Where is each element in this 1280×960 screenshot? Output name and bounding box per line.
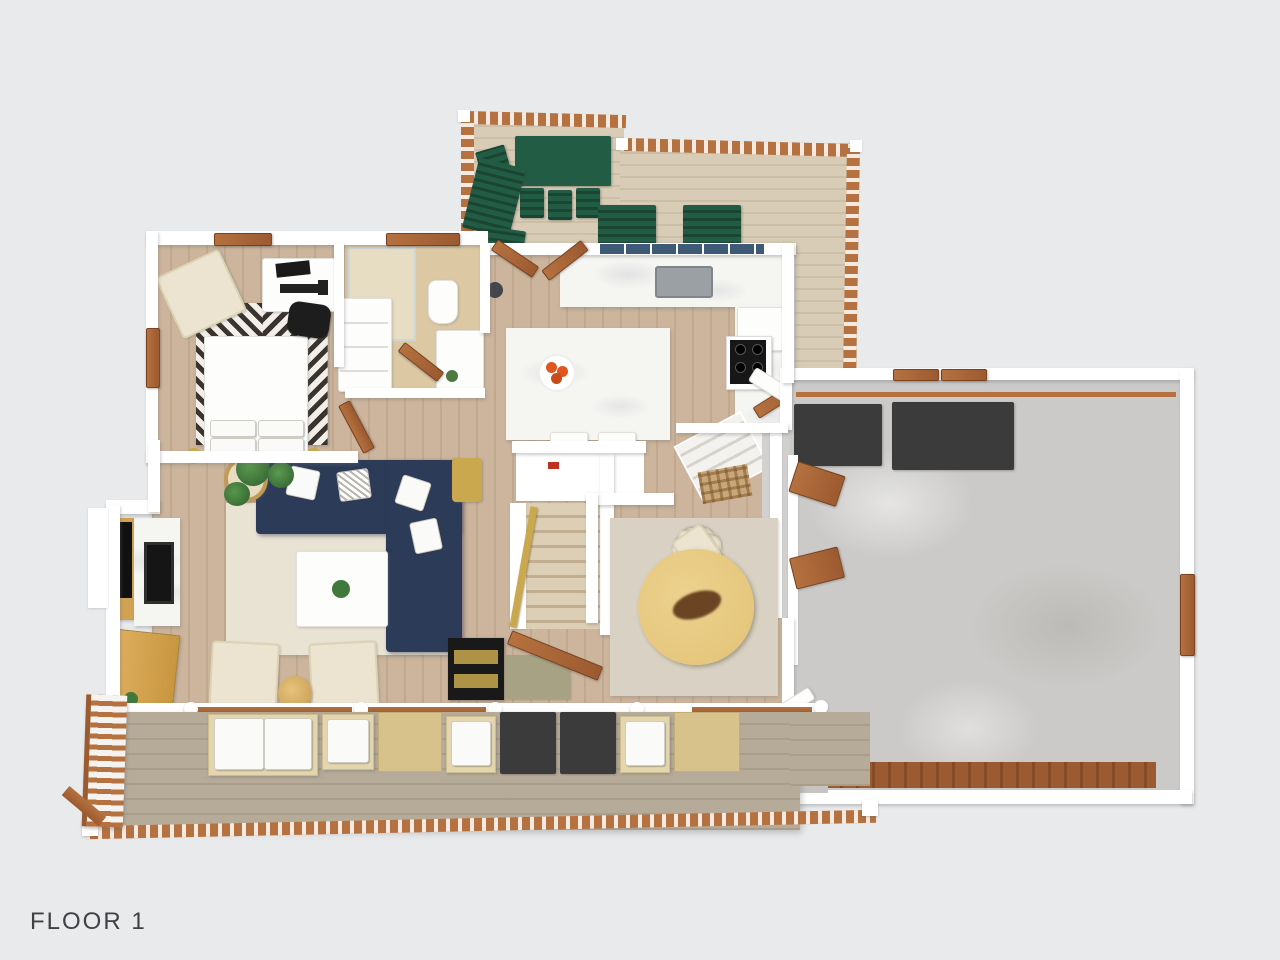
top-deck-post-cap bbox=[616, 138, 628, 150]
outdoor-sofa-cushion bbox=[214, 718, 264, 770]
bathroom-bottom-wall bbox=[345, 388, 485, 398]
bar-cabinet bbox=[448, 638, 504, 700]
living-left-upper-wall bbox=[148, 440, 160, 512]
bed-pillow bbox=[258, 420, 304, 437]
green-patio-chair bbox=[520, 188, 544, 218]
kitchen-island bbox=[506, 328, 670, 440]
fruit bbox=[546, 362, 557, 373]
bathroom-window bbox=[386, 233, 460, 246]
outdoor-tan-platform bbox=[378, 712, 442, 772]
closet-shelf-line bbox=[340, 370, 388, 372]
coffee-table-plant bbox=[332, 580, 350, 598]
nook-red-item bbox=[548, 462, 559, 469]
burner bbox=[752, 344, 763, 355]
green-patio-table bbox=[515, 136, 611, 186]
outdoor-dark-mat bbox=[500, 712, 556, 774]
entry-nook-wall bbox=[512, 441, 646, 453]
desk-chair bbox=[286, 300, 332, 340]
outdoor-tan-platform bbox=[674, 712, 740, 772]
burner bbox=[735, 362, 746, 373]
closet-shelf-line bbox=[340, 346, 388, 348]
toilet bbox=[428, 280, 458, 324]
burner bbox=[735, 344, 746, 355]
closet-shelves bbox=[338, 298, 392, 392]
potted-plant bbox=[268, 462, 294, 488]
kitchen-window-band bbox=[598, 244, 764, 254]
closet-shelf-line bbox=[340, 322, 388, 324]
bed-pillow bbox=[210, 420, 256, 437]
kitchen-left-wall-stub bbox=[480, 243, 490, 333]
bedroom-left-window bbox=[146, 328, 160, 388]
garage-baseboard bbox=[796, 392, 1176, 397]
bar-cabinet-shelf bbox=[454, 674, 498, 688]
garage-top-window bbox=[941, 369, 987, 381]
sofa-pillow-patterned bbox=[336, 468, 372, 502]
outdoor-chair-cushion bbox=[625, 721, 665, 766]
desk-monitor bbox=[318, 280, 328, 295]
living-left-wall bbox=[106, 505, 120, 717]
bar-cabinet-shelf bbox=[454, 650, 498, 664]
green-patio-chair bbox=[548, 190, 572, 220]
garage-top-window bbox=[893, 369, 939, 381]
green-patio-chair bbox=[576, 188, 600, 218]
top-deck-post-cap bbox=[458, 110, 470, 122]
sofa-side-table-gold bbox=[452, 458, 482, 502]
rear-deck-floor-right bbox=[790, 712, 870, 786]
keyboard bbox=[280, 284, 318, 293]
outdoor-chair-cushion bbox=[451, 721, 491, 766]
dining-top-wall bbox=[586, 493, 674, 505]
stairs-up-top-wall bbox=[676, 423, 788, 433]
top-deck-post-cap bbox=[850, 140, 862, 152]
garage-top-wall bbox=[782, 368, 1192, 380]
outdoor-sofa-cushion bbox=[264, 718, 312, 770]
outdoor-chair-cushion bbox=[327, 719, 369, 763]
outdoor-dark-mat bbox=[560, 712, 616, 774]
garage-right-window bbox=[1180, 574, 1195, 656]
bedroom-window bbox=[214, 233, 272, 246]
fruit bbox=[551, 373, 562, 384]
vanity-plant bbox=[446, 370, 458, 382]
floor-plan-canvas: FLOOR 1 bbox=[0, 0, 1280, 960]
garage-bottom-wall bbox=[796, 790, 1192, 804]
bedroom-closet-divider bbox=[334, 243, 344, 367]
potted-plant bbox=[224, 482, 250, 506]
chimney-bump bbox=[88, 508, 108, 608]
top-deck-railing-right bbox=[843, 148, 860, 374]
garage-mat bbox=[892, 402, 1014, 470]
railing-end-post bbox=[862, 800, 878, 816]
kitchen-right-wall bbox=[782, 243, 794, 383]
kitchen-sink bbox=[655, 266, 713, 298]
fireplace-insert bbox=[144, 542, 174, 604]
floor-label: FLOOR 1 bbox=[30, 908, 147, 936]
garage-door-threshold bbox=[824, 762, 1156, 788]
garage-mat bbox=[794, 404, 882, 466]
bedroom-bottom-wall bbox=[146, 451, 358, 463]
bathroom-vanity bbox=[436, 330, 484, 390]
dining-left-wall bbox=[586, 493, 598, 623]
